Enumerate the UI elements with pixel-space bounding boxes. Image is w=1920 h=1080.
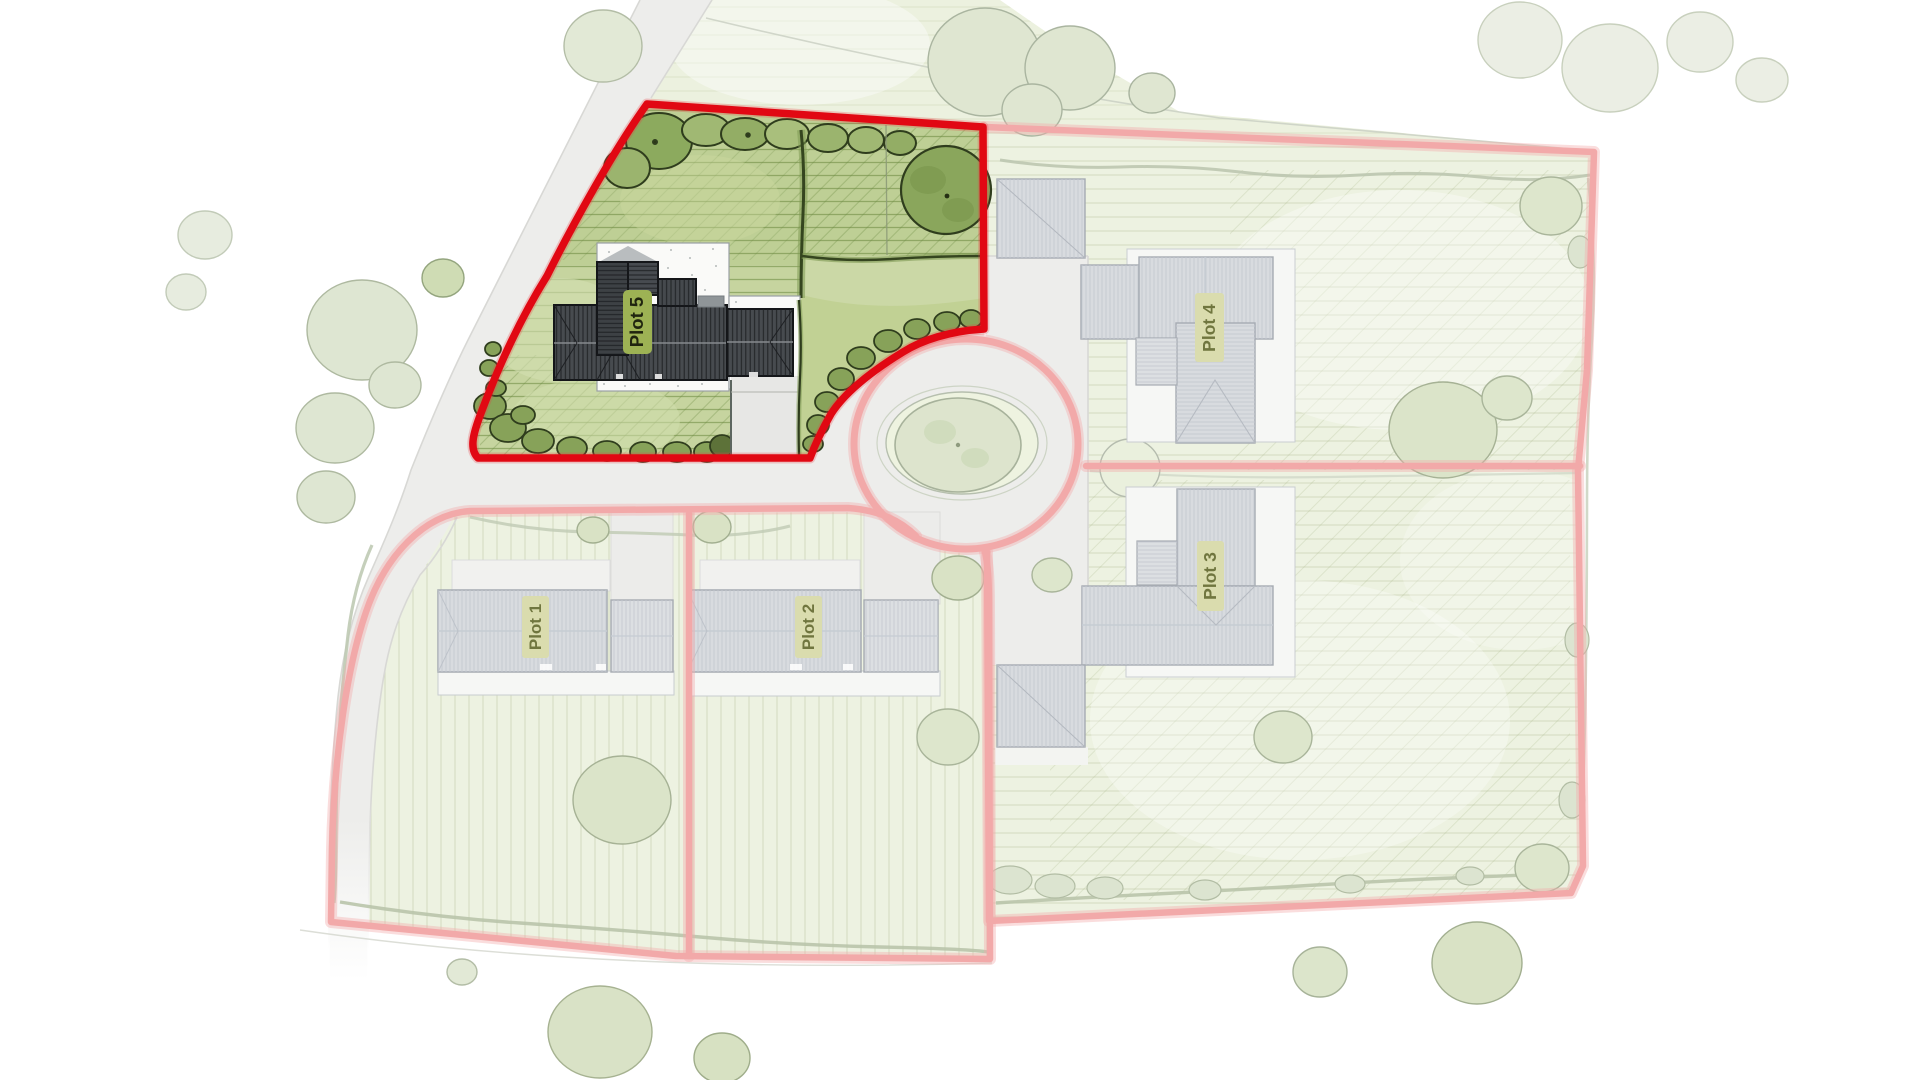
svg-text:Plot 4: Plot 4: [1199, 304, 1219, 352]
svg-text:Plot 2: Plot 2: [799, 604, 818, 650]
svg-text:Plot 5: Plot 5: [626, 297, 647, 347]
svg-text:Plot 1: Plot 1: [526, 604, 545, 650]
svg-text:Plot 3: Plot 3: [1200, 552, 1220, 600]
